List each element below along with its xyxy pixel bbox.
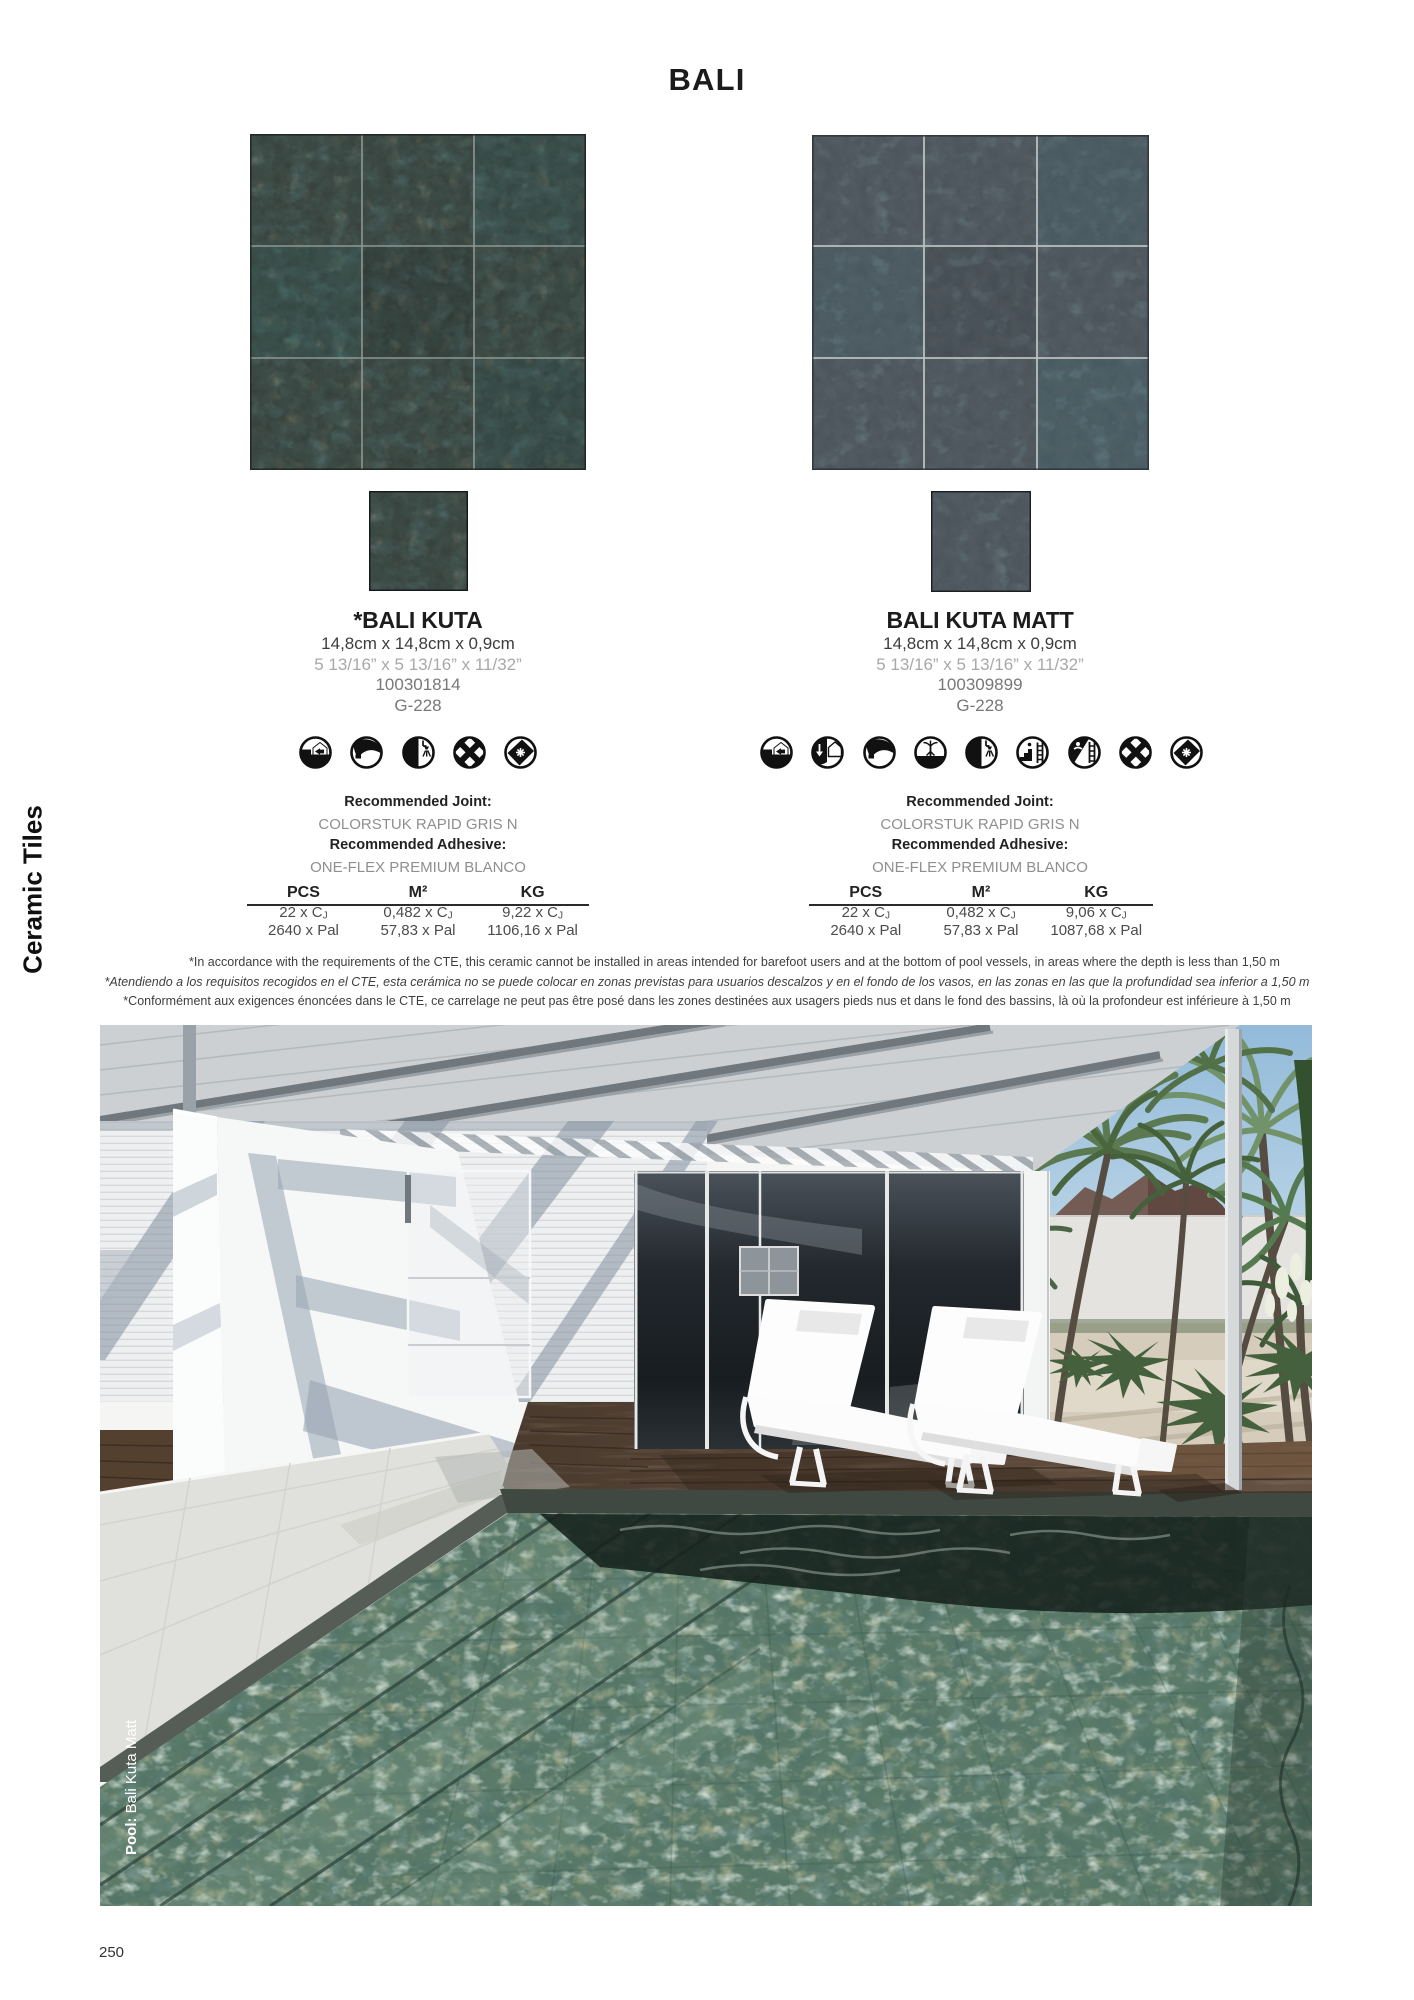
- svg-text:Pool: Bali Kuta Matt: Pool: Bali Kuta Matt: [123, 1719, 140, 1855]
